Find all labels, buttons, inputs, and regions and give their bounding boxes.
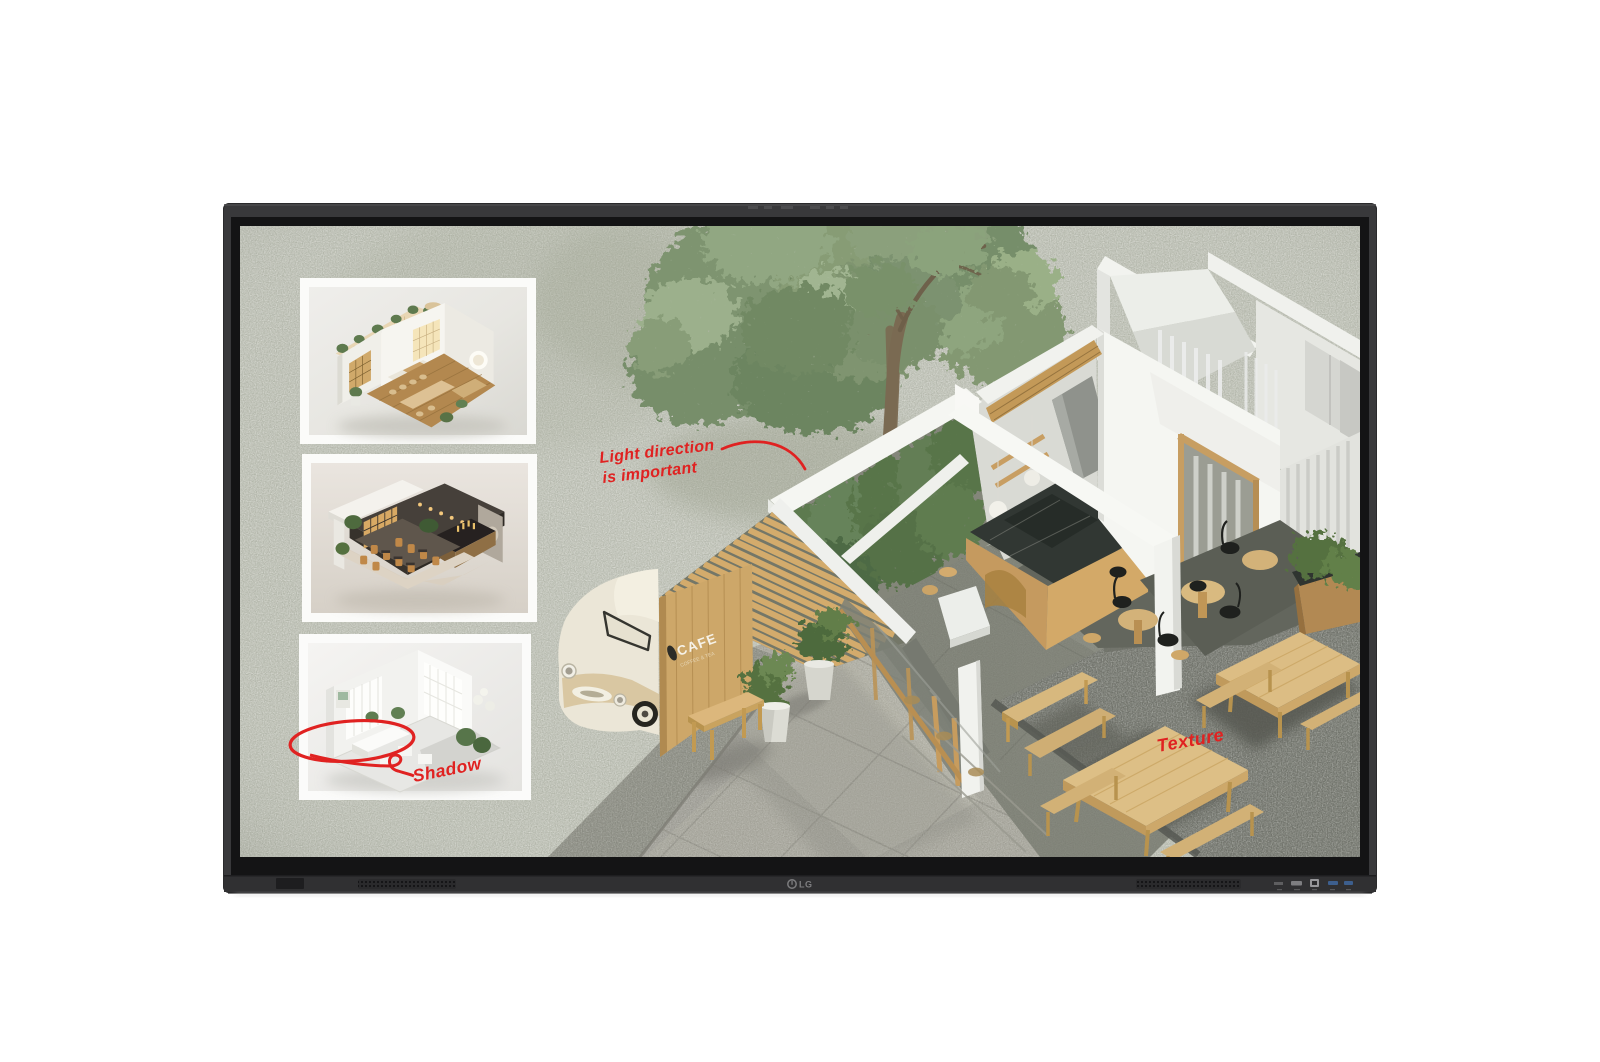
svg-text:LG: LG (799, 880, 813, 890)
